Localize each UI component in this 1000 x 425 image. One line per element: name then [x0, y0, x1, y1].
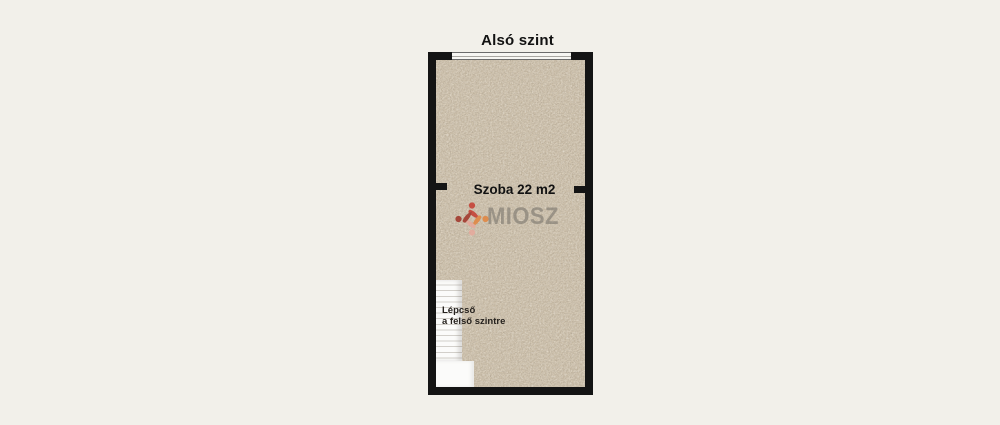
window-pane-line [452, 56, 571, 57]
stairs-label-line1: Lépcső [442, 305, 475, 316]
plan-outline: Szoba 22 m2 Lépcső a felső szintre [428, 52, 593, 395]
stairs-label: Lépcső a felső szintre [442, 305, 505, 327]
staircase-landing [436, 361, 474, 387]
stairs-label-line2: a felső szintre [442, 316, 505, 327]
floorplan-image: Alsó szint [0, 0, 1000, 425]
watermark-text: MIOSZ [487, 202, 559, 230]
window [452, 52, 571, 60]
floor-level-title: Alsó szint [428, 32, 593, 49]
miosz-logo-icon [453, 200, 491, 238]
watermark: MIOSZ [453, 200, 569, 238]
room-label: Szoba 22 m2 [428, 182, 593, 197]
